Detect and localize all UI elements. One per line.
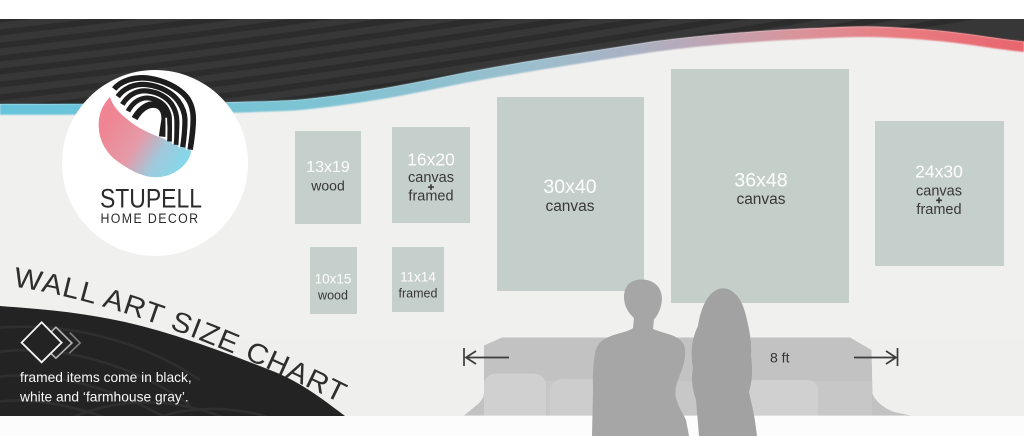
svg-text:framed items come in black,: framed items come in black, [20,370,192,385]
svg-text:canvas: canvas [916,184,962,200]
svg-text:wood: wood [310,178,344,194]
svg-text:13x19: 13x19 [306,159,350,176]
svg-text:10x15: 10x15 [315,272,352,287]
svg-text:30x40: 30x40 [543,176,596,198]
svg-text:framed: framed [916,202,961,218]
svg-text:24x30: 24x30 [915,162,963,182]
svg-text:canvas: canvas [736,191,785,208]
svg-text:canvas: canvas [545,198,594,215]
svg-text:framed: framed [399,287,438,301]
svg-text:STUPELL: STUPELL [100,184,202,214]
svg-text:16x20: 16x20 [407,150,455,170]
svg-text:8 ft: 8 ft [770,350,790,366]
svg-text:canvas: canvas [408,170,454,186]
svg-text:HOME DECOR: HOME DECOR [101,211,200,226]
svg-text:36x48: 36x48 [734,170,787,192]
svg-text:white and ‘farmhouse gray’.: white and ‘farmhouse gray’. [19,390,189,405]
svg-text:wood: wood [317,289,348,303]
svg-text:11x14: 11x14 [400,270,436,285]
svg-text:framed: framed [408,189,453,205]
